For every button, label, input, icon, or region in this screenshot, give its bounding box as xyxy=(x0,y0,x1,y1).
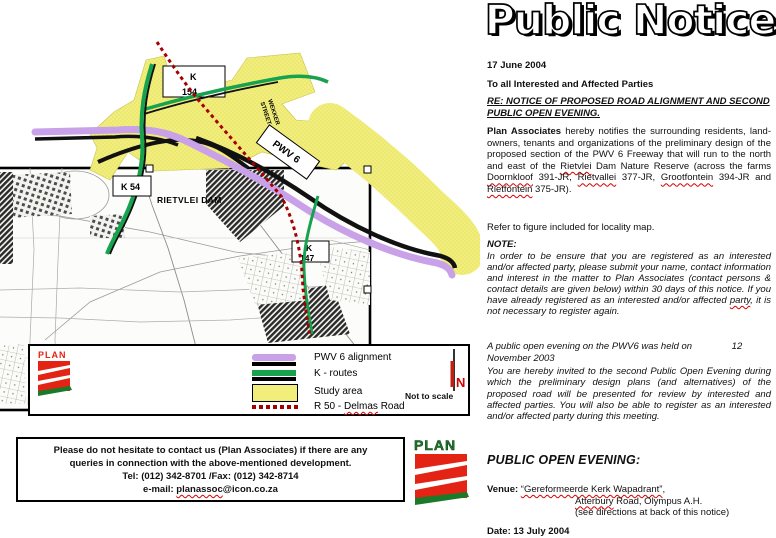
legend-label-kroutes: K - routes xyxy=(314,368,357,379)
legend-swatch-pwv6 xyxy=(252,354,296,366)
text-segment: @icon.co.za xyxy=(223,484,278,495)
venue-name: “Gereformeerde Kerk Wapadrant” xyxy=(521,484,663,495)
label-k54-text: K 54 xyxy=(121,182,140,192)
contact-line: queries in connection with the above-men… xyxy=(18,457,403,470)
north-arrow-n: N xyxy=(456,375,465,390)
selection-handle[interactable] xyxy=(364,286,371,293)
contact-email: planassoc xyxy=(176,484,222,495)
paragraph-intro: Plan Associates hereby notifies the surr… xyxy=(487,126,771,196)
contact-box: Please do not hesitate to contact us (Pl… xyxy=(16,437,405,502)
plan-logo-text: PLAN xyxy=(38,350,67,360)
salutation: To all Interested and Affected Parties xyxy=(487,79,771,91)
text-segment: Delmas xyxy=(344,401,378,412)
text-segment: e-mail: xyxy=(143,484,176,495)
re-heading: RE: NOTICE OF PROPOSED ROAD ALIGNMENT AN… xyxy=(487,96,771,119)
legend-label-pwv6: PWV 6 alignment xyxy=(314,352,391,363)
map-label-rietvlei-dam: RIETVLEI DAM xyxy=(157,195,222,205)
paragraph-open-evening-held: A public open evening on the PWV6 was he… xyxy=(487,341,771,364)
text-segment: Dam Nature Reserve (across the farms xyxy=(591,161,771,172)
venue-label: Venue: xyxy=(487,484,521,495)
refer-to-figure-line: Refer to figure included for locality ma… xyxy=(487,222,771,234)
paragraph-invitation: You are hereby invited to the second Pub… xyxy=(487,366,771,422)
plan-logo-text: PLAN xyxy=(414,437,456,453)
text-segment: RE: NOTICE OF PROPOSED ROAD ALIGNMENT AN… xyxy=(487,96,770,107)
study-area-swatch xyxy=(252,384,298,402)
plan-associates-logo-large: PLAN xyxy=(411,437,475,509)
text-segment: Road, Olympus A.H. xyxy=(614,496,703,507)
venue-block: Venue: “Gereformeerde Kerk Wapadrant”, A… xyxy=(487,484,771,519)
contact-email-line: e-mail: planassoc@icon.co.za xyxy=(18,483,403,496)
page-title: Public Notice xyxy=(484,0,776,44)
plan-associates-logo-small: PLAN xyxy=(36,348,78,402)
text-segment: Road xyxy=(378,401,405,412)
plan-logo-square xyxy=(415,454,467,498)
text-segment: Doornkloof xyxy=(487,172,533,183)
legend-box: PLAN PWV 6 alignment K - routes Study ar… xyxy=(28,344,470,416)
north-arrow: N xyxy=(438,347,466,395)
contact-phone-fax: Tel: (012) 342-8701 /Fax: (012) 342-8714 xyxy=(18,470,403,483)
label-k154-line1: K xyxy=(190,72,197,82)
text-segment: Rietvlei xyxy=(560,161,591,172)
r50-swatch-dashes xyxy=(252,405,300,409)
text-segment: Atterbury xyxy=(575,496,614,507)
text-segment: 377-JR, xyxy=(616,172,661,183)
plan-associates-name: Plan Associates xyxy=(487,126,561,137)
text-segment: Rietvallei xyxy=(578,172,617,183)
text-segment: R 50 - xyxy=(314,401,344,412)
note-label: NOTE: xyxy=(487,239,771,251)
label-k54: K 54 xyxy=(113,176,151,196)
venue-line1: Venue: “Gereformeerde Kerk Wapadrant”, xyxy=(487,484,771,496)
text-segment: party xyxy=(730,295,750,306)
selection-handle[interactable] xyxy=(146,165,153,172)
venue-line2: Atterbury Road, Olympus A.H. xyxy=(575,496,771,508)
map-urban-area xyxy=(8,172,72,218)
not-to-scale-label: Not to scale xyxy=(405,391,453,401)
legend-label-r50: R 50 - Delmas Road xyxy=(314,401,405,412)
text-segment: In order to be ensure that you are regis… xyxy=(487,251,771,306)
text-segment: Grootfontein xyxy=(661,172,713,183)
public-notice-page: { "notice": { "title": "Public Notice", … xyxy=(0,0,776,532)
text-segment: Rietfontein xyxy=(487,184,532,195)
kroutes-swatch-green xyxy=(252,370,296,376)
legend-swatch-kroutes xyxy=(252,370,296,381)
legend-label-study-area: Study area xyxy=(314,386,362,397)
text-segment: 375-JR). xyxy=(532,184,571,195)
text-segment: 394-JR and xyxy=(713,172,771,183)
label-k147: K 147 xyxy=(292,241,329,263)
notice-date: 17 June 2004 xyxy=(487,60,771,72)
text-segment: , xyxy=(662,484,665,495)
text-segment: 391-JR, xyxy=(533,172,578,183)
contact-line: Please do not hesitate to contact us (Pl… xyxy=(18,444,403,457)
text-segment: PUBLIC OPEN EVENING. xyxy=(487,108,600,119)
public-open-evening-heading: PUBLIC OPEN EVENING: xyxy=(487,455,771,467)
venue-line3: (see directions at back of this notice) xyxy=(575,507,771,519)
selection-handle[interactable] xyxy=(364,166,371,173)
pwv6-swatch-purple xyxy=(252,354,296,361)
paragraph-register: In order to be ensure that you are regis… xyxy=(487,251,771,317)
